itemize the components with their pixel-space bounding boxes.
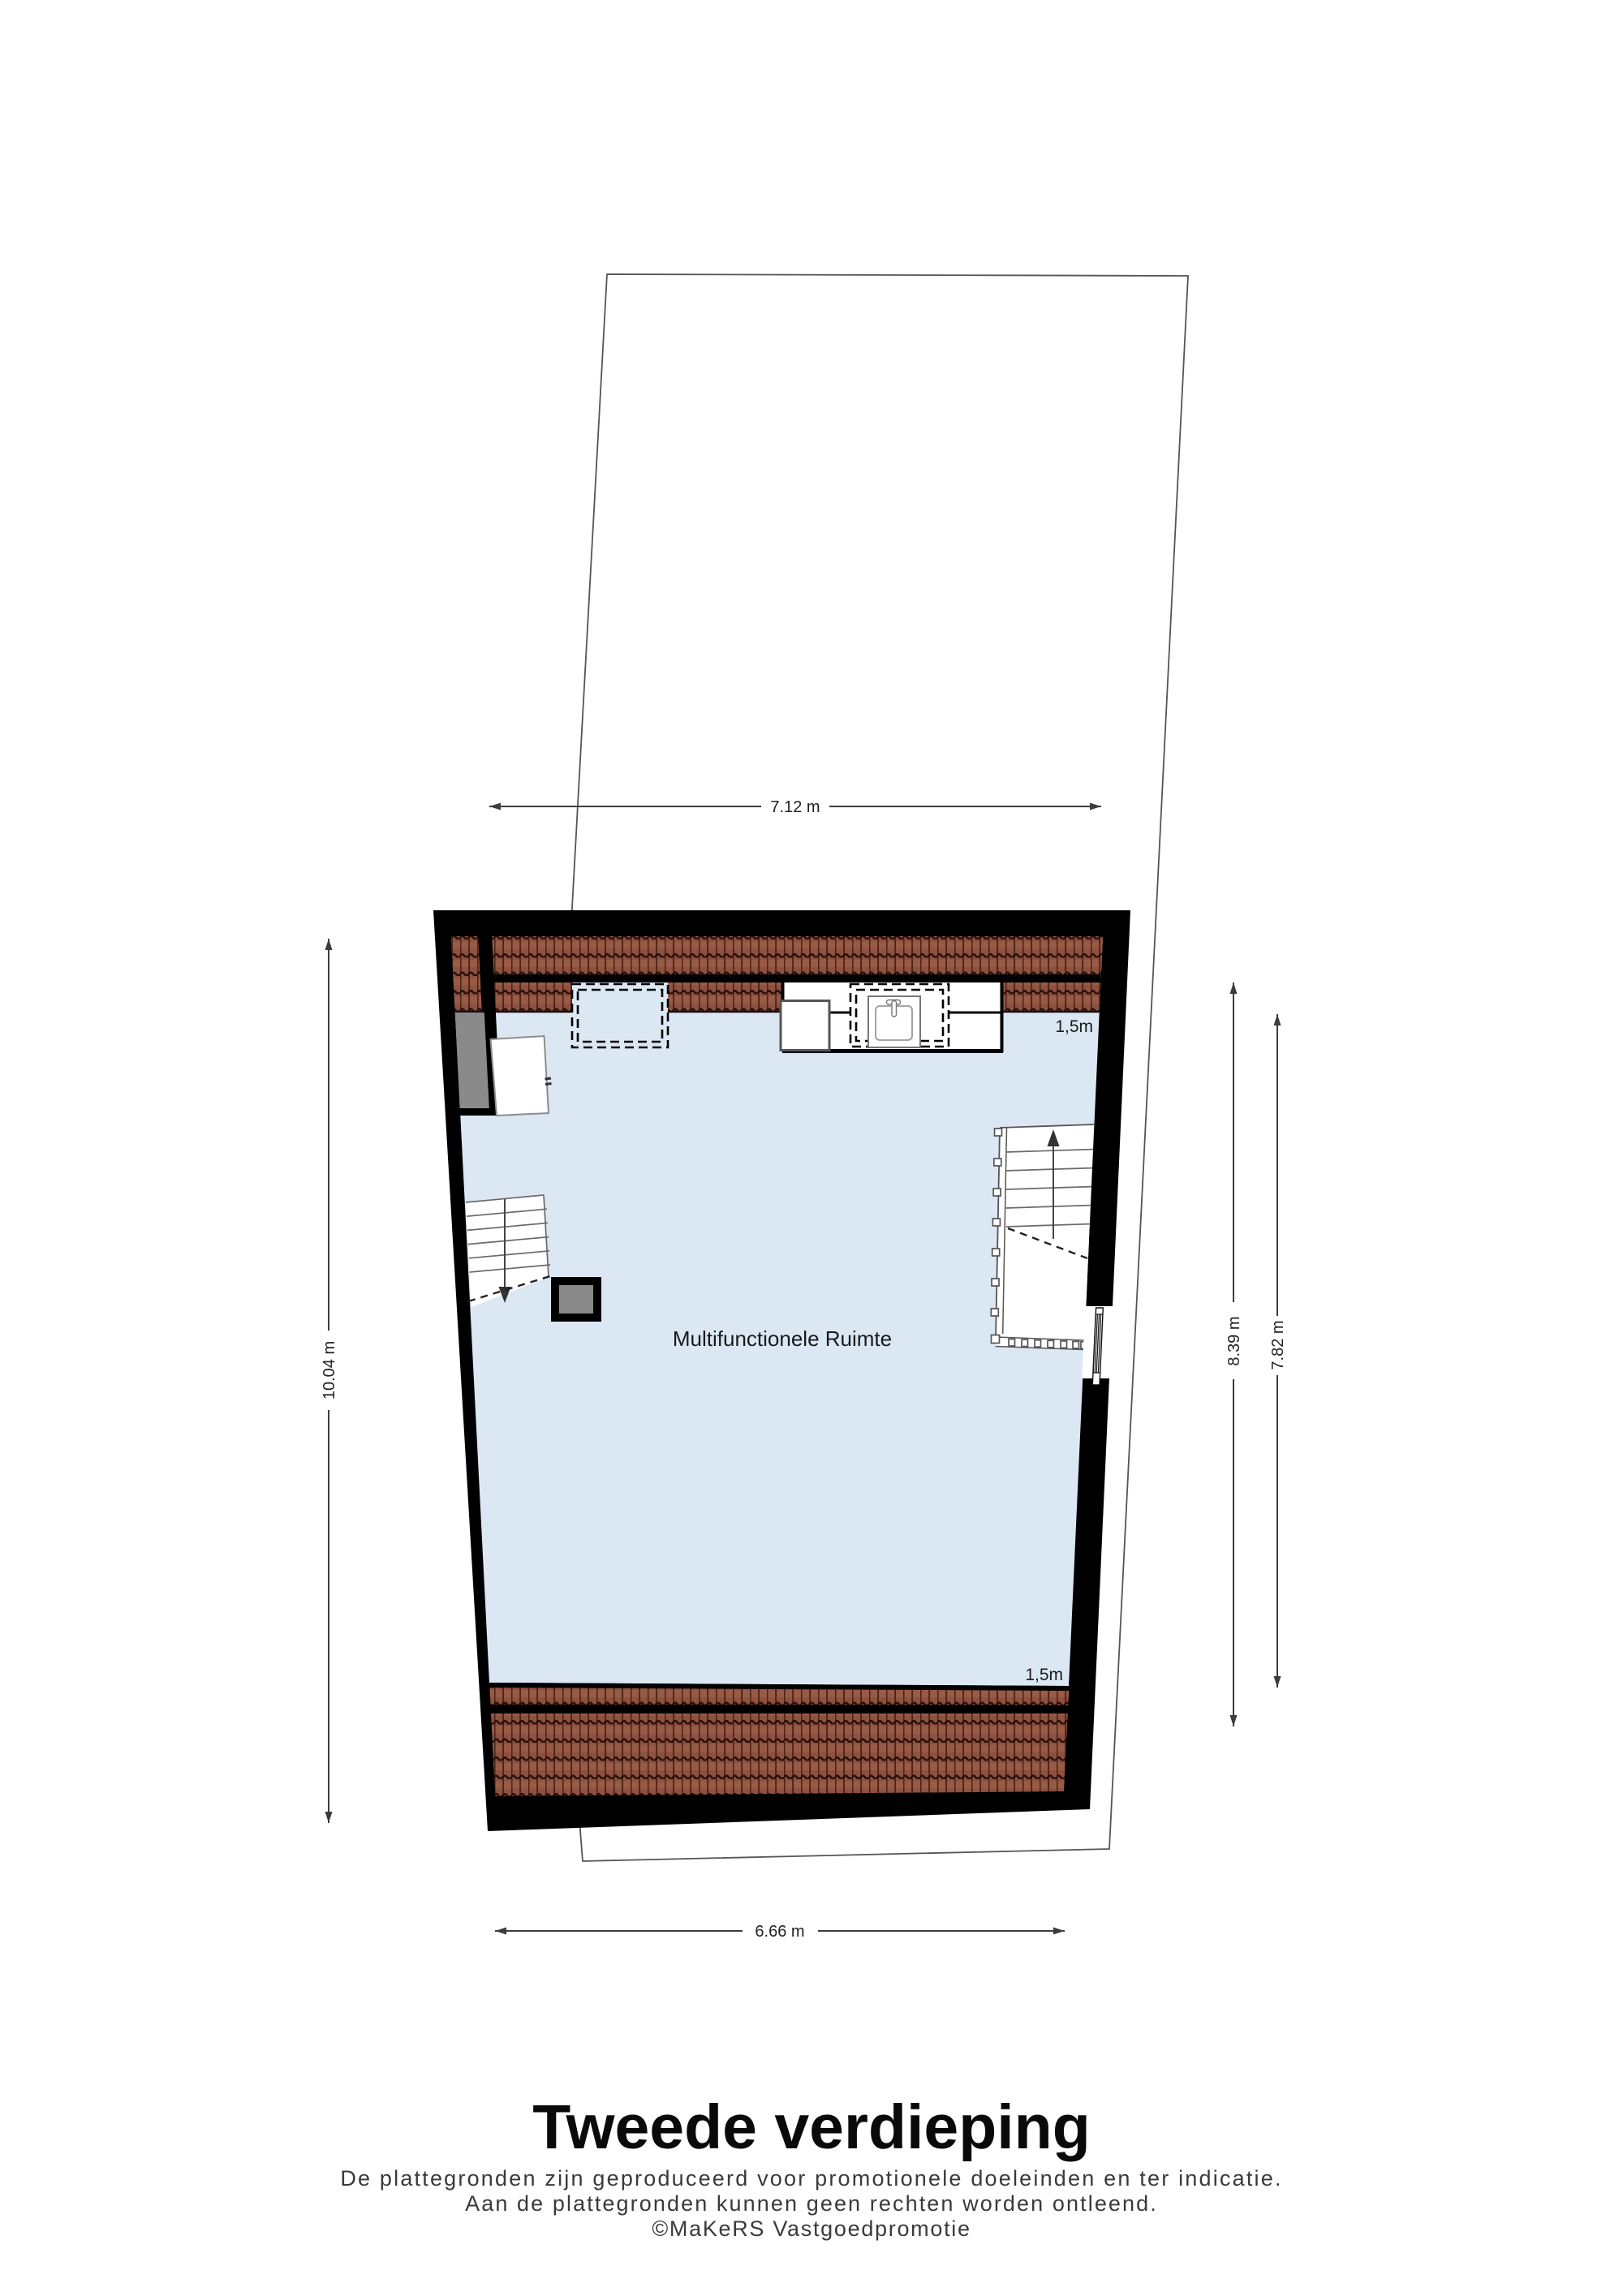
svg-text:De plattegronden zijn geproduc: De plattegronden zijn geproduceerd voor …: [340, 2166, 1282, 2191]
svg-text:1,5m: 1,5m: [1055, 1017, 1093, 1036]
svg-text:Multifunctionele Ruimte: Multifunctionele Ruimte: [673, 1326, 892, 1351]
svg-text:1,5m: 1,5m: [1025, 1666, 1063, 1684]
svg-text:7.82 m: 7.82 m: [1269, 1320, 1287, 1369]
svg-text:7.12 m: 7.12 m: [770, 798, 820, 816]
svg-text:©MaKeRS Vastgoedpromotie: ©MaKeRS Vastgoedpromotie: [652, 2216, 971, 2241]
svg-text:Tweede verdieping: Tweede verdieping: [532, 2092, 1090, 2162]
svg-text:10.04 m: 10.04 m: [321, 1341, 338, 1400]
svg-text:6.66 m: 6.66 m: [755, 1923, 804, 1941]
svg-text:8.39 m: 8.39 m: [1225, 1316, 1243, 1365]
svg-text:Aan de plattegronden kunnen ge: Aan de plattegronden kunnen geen rechten…: [465, 2191, 1158, 2216]
